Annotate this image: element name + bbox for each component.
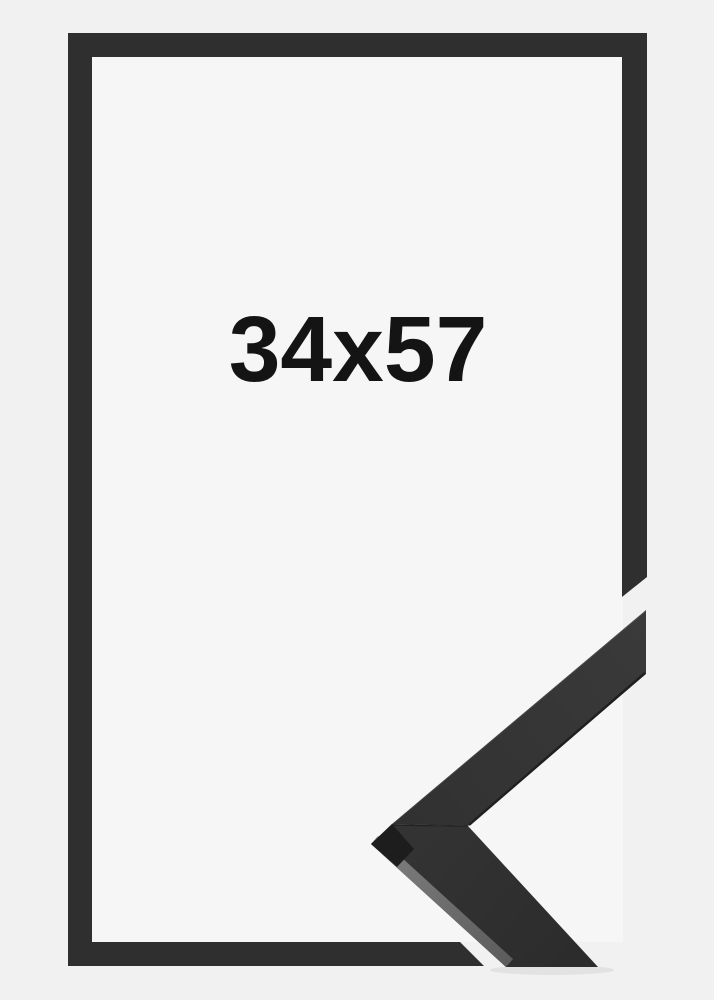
frame-graphic: 34x57 bbox=[0, 0, 714, 1000]
frame-border-right bbox=[622, 33, 647, 597]
frame-border-bottom bbox=[68, 942, 484, 966]
frame-interior bbox=[92, 57, 623, 942]
size-label: 34x57 bbox=[229, 297, 488, 401]
frame-product-image: 34x57 bbox=[0, 0, 714, 1000]
frame-border-left bbox=[68, 33, 92, 966]
moulding-mitre-seam bbox=[393, 825, 467, 826]
frame-border-top bbox=[68, 33, 647, 57]
